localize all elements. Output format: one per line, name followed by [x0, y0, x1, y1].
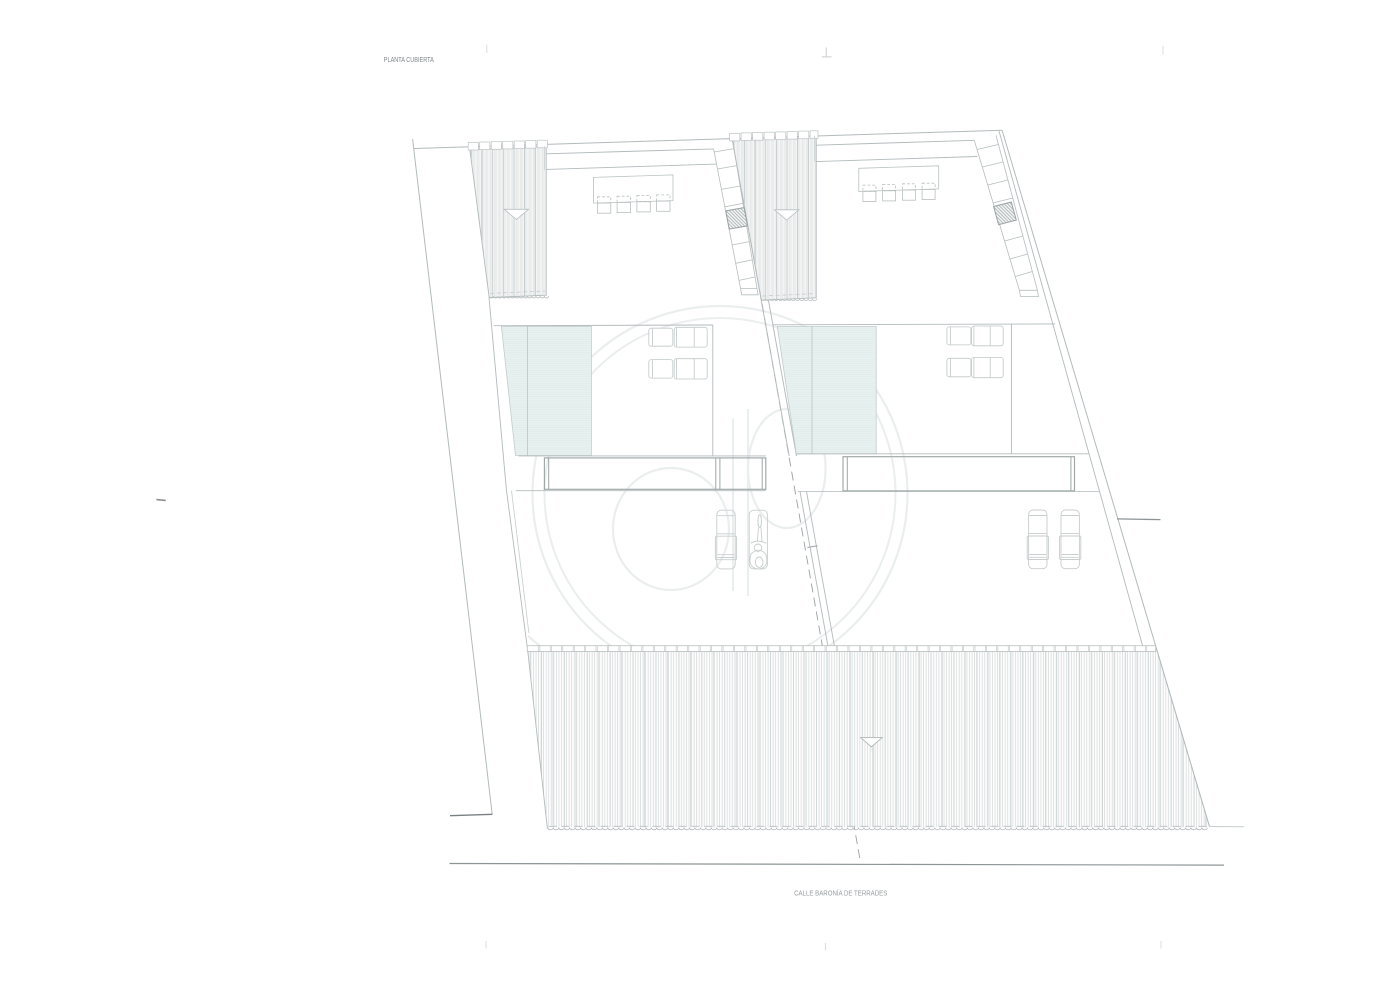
svg-text:PLANTA CUBIERTA: PLANTA CUBIERTA — [384, 55, 434, 64]
svg-text:CALLE BARONÍA DE TERRADES: CALLE BARONÍA DE TERRADES — [794, 888, 887, 897]
